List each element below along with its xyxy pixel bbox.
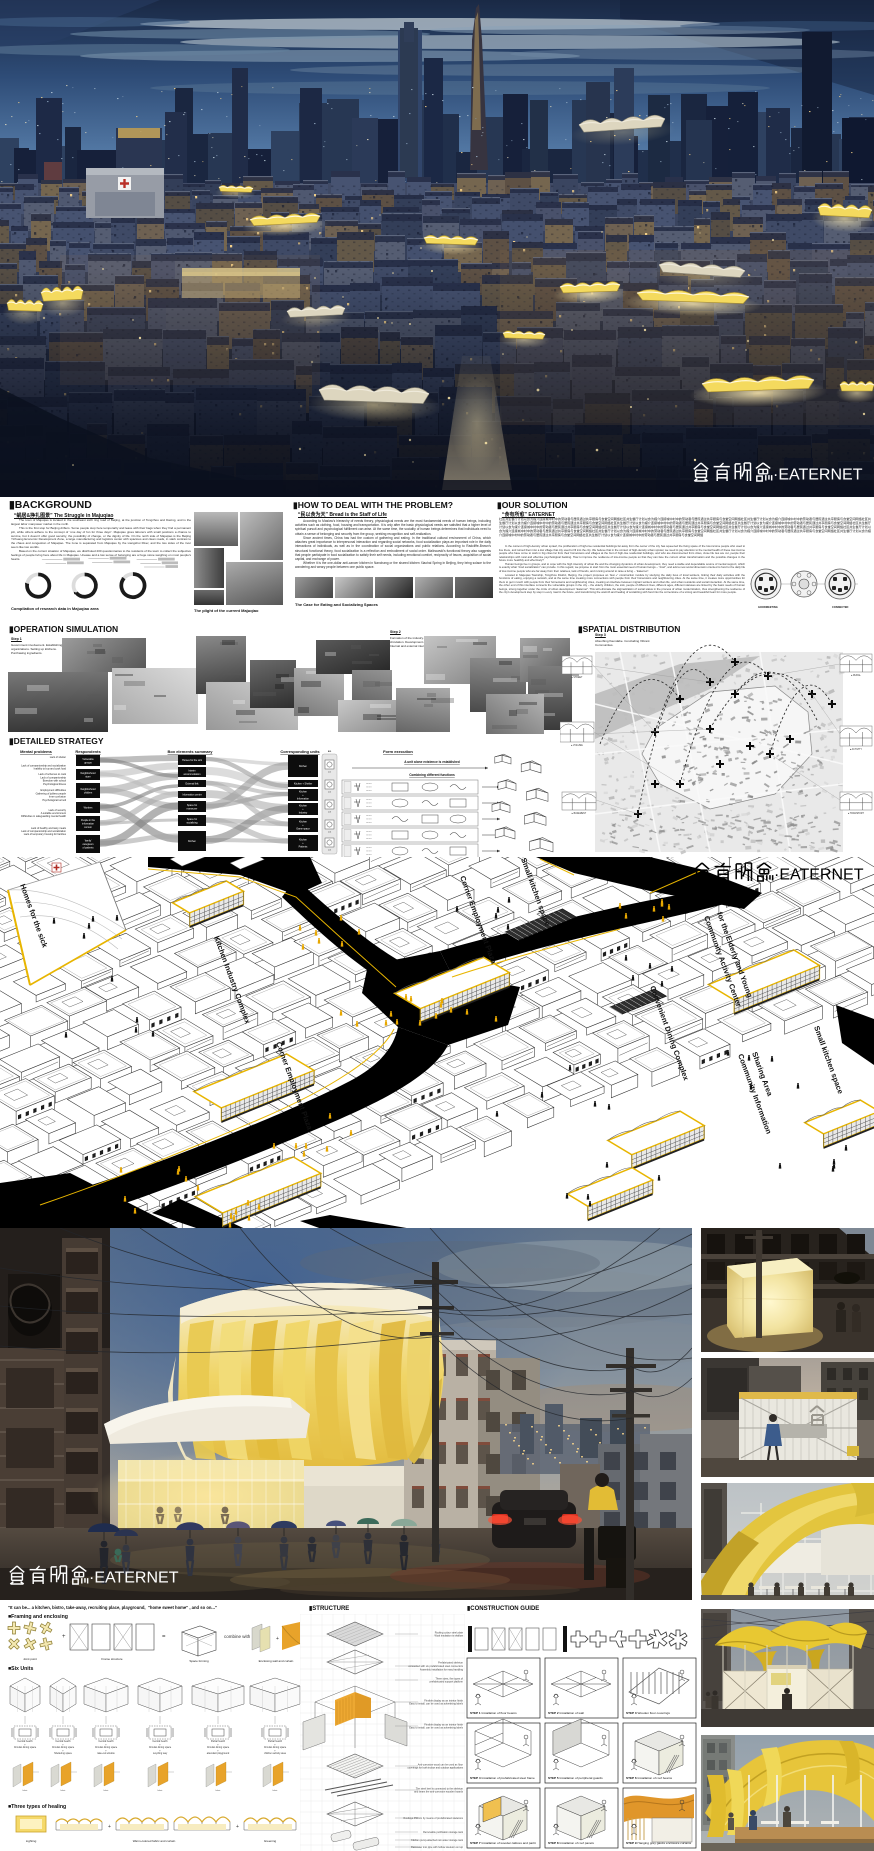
svg-text:Lack of shelter: Lack of shelter (50, 756, 66, 759)
svg-text:Respondents: Respondents (75, 749, 101, 754)
svg-text:Patients: Patients (299, 846, 308, 849)
svg-text:recycling way: recycling way (153, 1752, 168, 1755)
svg-text:Lack of temporary housing for: Lack of temporary housing for families (24, 833, 67, 836)
svg-text:store: store (85, 775, 91, 778)
svg-text:+: + (62, 1634, 66, 1640)
svg-text:STEP 6 Installation of roof b: STEP 6 Installation of roof beams (626, 1776, 672, 1780)
svg-text:groups: groups (84, 761, 92, 764)
svg-text:▸ STREET: ▸ STREET (572, 676, 583, 679)
svg-text:▸ RURAL: ▸ RURAL (851, 674, 861, 677)
svg-text:STEP 5 Installation of periph: STEP 5 Installation of peripheral guards (548, 1776, 603, 1780)
svg-text:Space forming: Space forming (189, 1659, 209, 1663)
svg-text:▸ BASEMENT: ▸ BASEMENT (572, 812, 587, 815)
svg-text:children: children (84, 791, 93, 794)
svg-text:Circular dining space: Circular dining space (14, 1746, 37, 1749)
svg-text:Information center: Information center (182, 794, 201, 797)
svg-text:Information: Information (297, 798, 310, 801)
svg-text:=: = (162, 1634, 166, 1640)
svg-text:attendant playground: attendant playground (207, 1752, 230, 1755)
svg-text:Homes for the sick: Homes for the sick (182, 759, 203, 762)
svg-text:STEP 1 Installation of floor: STEP 1 Installation of floor beams (470, 1711, 517, 1715)
svg-text:Kitchen pump-attached rain wat: Kitchen pump-attached rain water storage… (411, 1839, 464, 1842)
svg-text:GOODMEETING: GOODMEETING (758, 605, 778, 609)
svg-text:CONNECTED: CONNECTED (832, 605, 849, 609)
svg-text:STEP 9 Hanging grey gauze enc: STEP 9 Hanging grey gauze enclosure curt… (626, 1841, 692, 1845)
svg-text:STEP 8 Installation of roof p: STEP 8 Installation of roof panels (548, 1841, 594, 1845)
svg-text:maneuver: maneuver (187, 807, 198, 810)
svg-text:Psychological turmoil: Psychological turmoil (43, 799, 67, 802)
svg-text:fabric: fabric (273, 1790, 278, 1792)
svg-text:combine with: combine with (224, 1634, 251, 1639)
svg-text:Assembly installation for easy: Assembly installation for easy handling (420, 1668, 464, 1671)
svg-text:STEP 4 Installation of prefab: STEP 4 Installation of prefabricated ste… (470, 1776, 535, 1780)
svg-text:Kitchen: Kitchen (188, 840, 197, 843)
svg-text:·EATERNET: ·EATERNET (89, 1570, 179, 1587)
svg-text:Sheltering space: Sheltering space (54, 1752, 72, 1755)
svg-text:+: + (108, 1824, 111, 1830)
svg-text:▫▫▫▫▫▫▫▫: ▫▫▫▫▫▫▫▫ (366, 806, 372, 808)
svg-text:take-out window: take-out window (97, 1752, 115, 1755)
svg-text:▫▫▫▫▫▫▫▫: ▫▫▫▫▫▫▫▫ (366, 847, 372, 849)
svg-text:Game space: Game space (296, 828, 310, 831)
svg-text:Greening: Greening (264, 1839, 277, 1843)
svg-text:Frame structure: Frame structure (101, 1657, 123, 1661)
svg-text:STEP 3 Wooden floor coverings: STEP 3 Wooden floor coverings (626, 1711, 670, 1715)
svg-text:prefabricated support platform: prefabricated support platform (430, 1681, 463, 1684)
svg-text:STEP 2 Installation of wall: STEP 2 Installation of wall (548, 1711, 584, 1715)
svg-text:▸ TRANSPORT: ▸ TRANSPORT (848, 812, 864, 815)
svg-text:coverings for both indoor and: coverings for both indoor and outdoor ap… (408, 1767, 464, 1770)
svg-text:▫▫▫▫▫▫▫▫: ▫▫▫▫▫▫▫▫ (366, 783, 372, 785)
svg-text:▫▫▫▫▫▫▫▫: ▫▫▫▫▫▫▫▫ (366, 854, 372, 856)
svg-text:Workers: Workers (84, 807, 94, 810)
svg-text:A unit alone existence is esta: A unit alone existence is established (404, 760, 460, 764)
svg-text:fabric: fabric (216, 1790, 221, 1792)
svg-text:▫▫▫▫▫▫▫▫: ▫▫▫▫▫▫▫▫ (366, 831, 372, 833)
svg-text:STEP 7 Installation of wooden: STEP 7 Installation of wooden lattices a… (470, 1841, 536, 1845)
svg-text:children activity area: children activity area (264, 1752, 286, 1755)
svg-text:of patients: of patients (82, 847, 94, 850)
svg-text:Wool insulation is shallow: Wool insulation is shallow (435, 1635, 464, 1638)
svg-text:Warm-colored fabric and curtai: Warm-colored fabric and curtain (133, 1839, 176, 1843)
svg-text:Easy to install, can be used a: Easy to install, can be used as advertis… (409, 1703, 464, 1706)
svg-text:▫▫▫▫▫▫▫▫: ▫▫▫▫▫▫▫▫ (366, 818, 372, 820)
svg-text:fabric: fabric (61, 1790, 66, 1792)
svg-text:socializing: socializing (186, 821, 198, 824)
svg-text:·EATERNET: ·EATERNET (773, 467, 863, 484)
svg-text:Industry: Industry (299, 812, 308, 815)
svg-text:▸ VOLUME: ▸ VOLUME (571, 744, 583, 747)
svg-text:fabric: fabric (104, 1790, 109, 1792)
svg-text:Form execution: Form execution (383, 749, 413, 754)
svg-text:▫▫▫▫▫▫▫▫: ▫▫▫▫▫▫▫▫ (366, 838, 372, 840)
svg-text:Rainwater into pipe with hollo: Rainwater into pipe with hollow skeleton… (411, 1846, 464, 1849)
svg-text:·EATERNET: ·EATERNET (774, 867, 864, 884)
svg-text:External link: External link (185, 783, 199, 786)
svg-text:▫▫▫▫▫▫▫▫: ▫▫▫▫▫▫▫▫ (366, 786, 372, 788)
svg-text:▫▫▫▫▫▫▫▫: ▫▫▫▫▫▫▫▫ (366, 815, 372, 817)
svg-text:+: + (236, 1824, 239, 1830)
svg-text:and bears the anti-corrosion w: and bears the anti-corrosion wooden boar… (414, 1791, 464, 1794)
svg-text:Lighting: Lighting (26, 1839, 37, 1843)
svg-text:cocoon: cocoon (84, 826, 92, 829)
svg-text:Easy to install, can be used a: Easy to install, can be used as advertis… (409, 1727, 464, 1730)
svg-text:Corresponding units: Corresponding units (280, 749, 320, 754)
svg-text:▫▫▫▫▫▫▫▫: ▫▫▫▫▫▫▫▫ (366, 850, 372, 852)
svg-text:Difficulties in safeguarding m: Difficulties in safeguarding mental heal… (21, 815, 66, 818)
svg-text:Removable purification storage: Removable purification storage tank (423, 1831, 464, 1834)
svg-text:▫▫▫▫▫▫▫▫: ▫▫▫▫▫▫▫▫ (366, 790, 372, 792)
svg-text:KG: KG (328, 751, 332, 753)
svg-text:fabric: fabric (158, 1790, 163, 1792)
svg-text:Kitchen + Shelter: Kitchen + Shelter (294, 783, 312, 786)
svg-text:Kitchen: Kitchen (299, 765, 308, 768)
svg-text:▸ ACTIVITY: ▸ ACTIVITY (850, 748, 862, 751)
svg-text:▫▫▫▫▫▫▫▫: ▫▫▫▫▫▫▫▫ (366, 802, 372, 804)
svg-text:+: + (276, 1636, 279, 1642)
svg-text:Overlays 450mm by means of pre: Overlays 450mm by means of prefabricated… (403, 1817, 463, 1820)
svg-text:▫▫▫▫▫▫▫▫: ▫▫▫▫▫▫▫▫ (366, 799, 372, 801)
svg-text:▫▫▫▫▫▫▫▫: ▫▫▫▫▫▫▫▫ (366, 822, 372, 824)
svg-text:Joint point: Joint point (23, 1657, 37, 1661)
svg-text:fabric: fabric (23, 1790, 28, 1792)
svg-text:Mental problems: Mental problems (20, 749, 53, 754)
svg-text:Inability to buy and cook food: Inability to buy and cook food (34, 768, 67, 771)
svg-text:Psychological illness: Psychological illness (43, 783, 67, 786)
svg-text:Enclosing wall and curtain: Enclosing wall and curtain (259, 1659, 294, 1663)
svg-text:▫▫▫▫▫▫▫▫: ▫▫▫▫▫▫▫▫ (366, 834, 372, 836)
svg-text:Combining different functions: Combining different functions (409, 773, 455, 777)
svg-text:Box elements summary: Box elements summary (168, 749, 214, 754)
svg-text:accommodation: accommodation (184, 773, 202, 776)
